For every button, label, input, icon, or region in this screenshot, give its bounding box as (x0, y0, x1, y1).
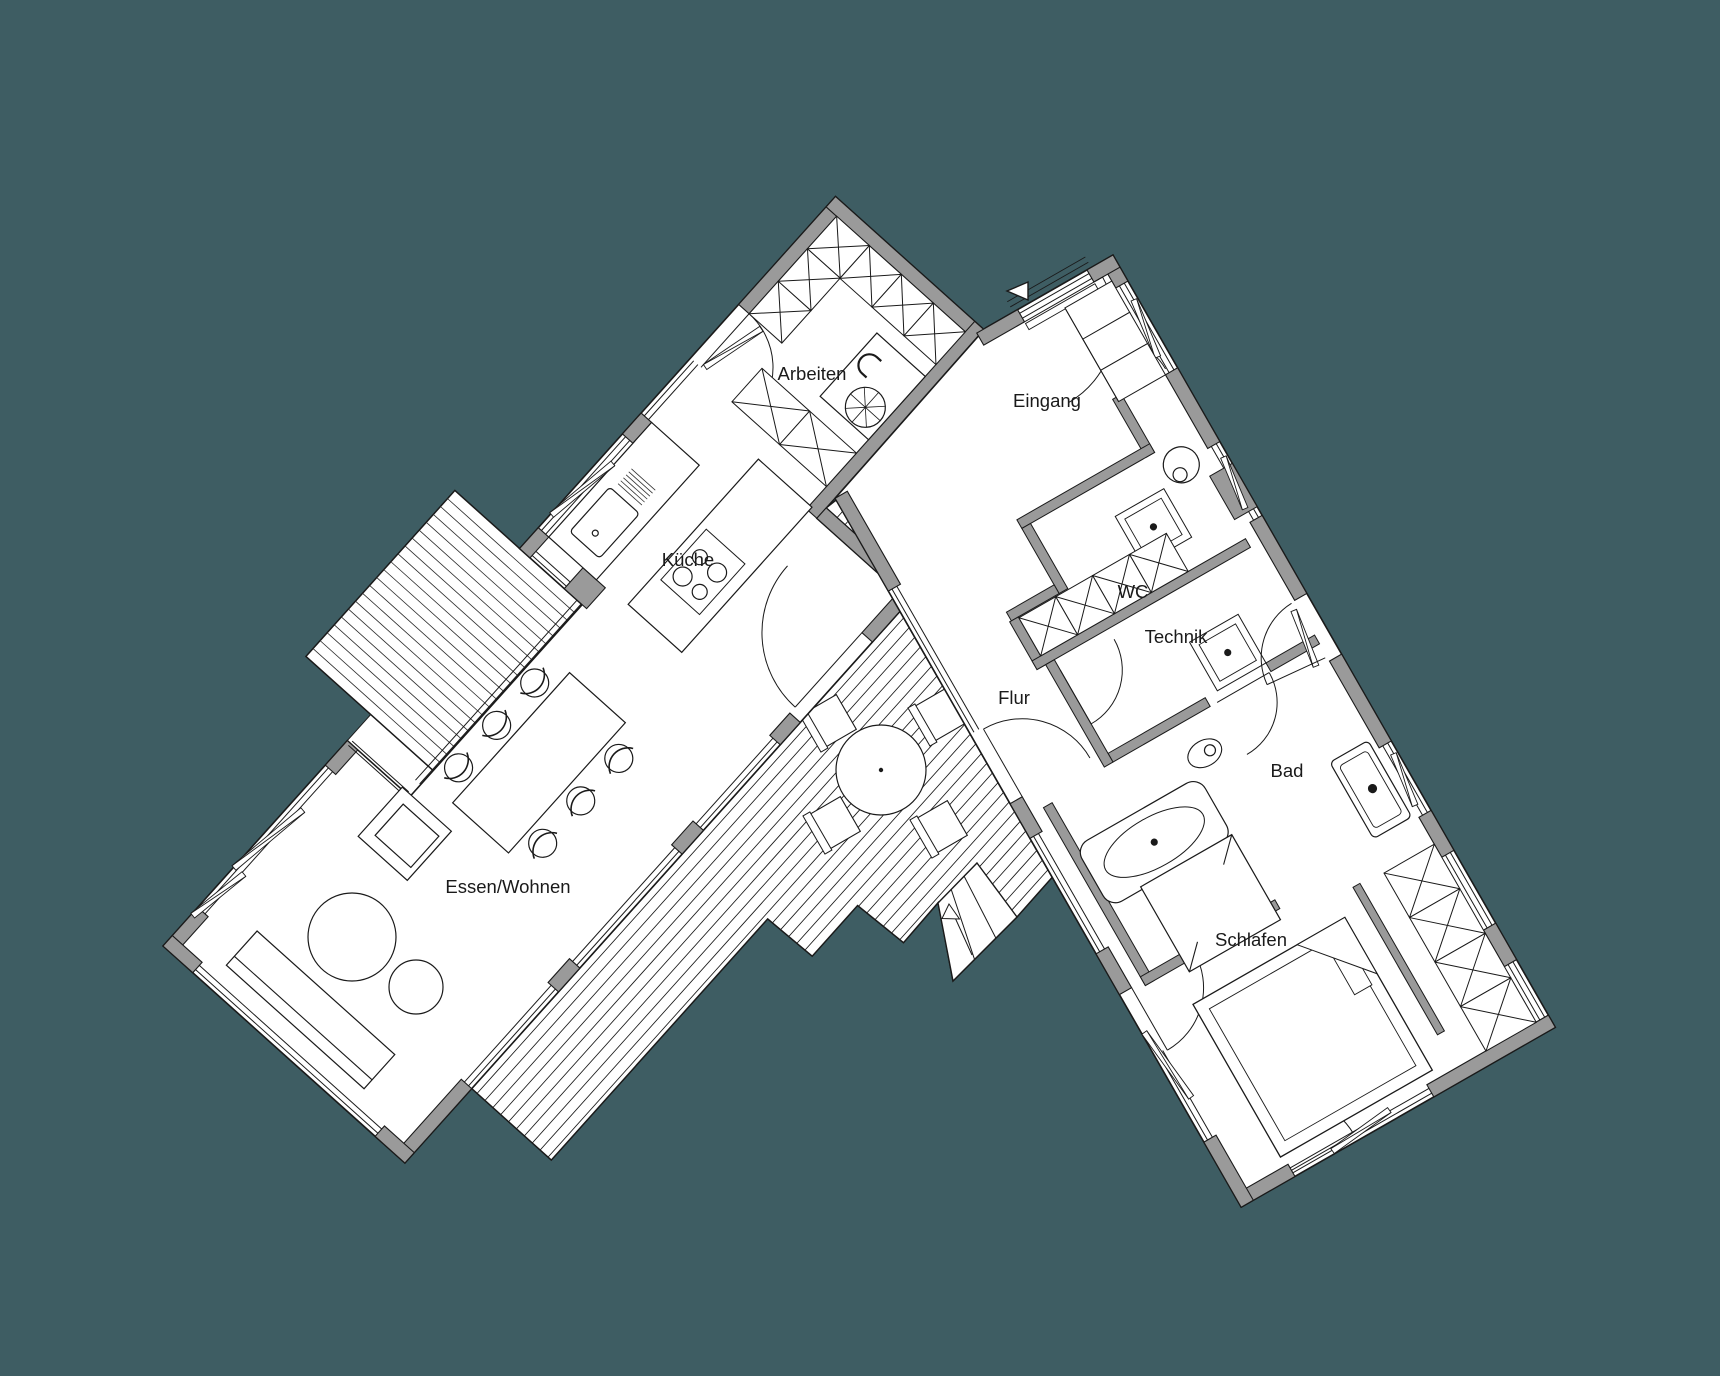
svg-text:Küche: Küche (662, 549, 714, 570)
svg-text:Arbeiten: Arbeiten (778, 363, 847, 384)
svg-text:Essen/Wohnen: Essen/Wohnen (445, 876, 570, 897)
svg-text:Bad: Bad (1271, 760, 1304, 781)
svg-text:Flur: Flur (998, 687, 1030, 708)
svg-text:Schlafen: Schlafen (1215, 929, 1287, 950)
svg-text:Eingang: Eingang (1013, 390, 1081, 411)
svg-text:WC: WC (1118, 581, 1149, 602)
svg-text:Technik: Technik (1145, 626, 1208, 647)
